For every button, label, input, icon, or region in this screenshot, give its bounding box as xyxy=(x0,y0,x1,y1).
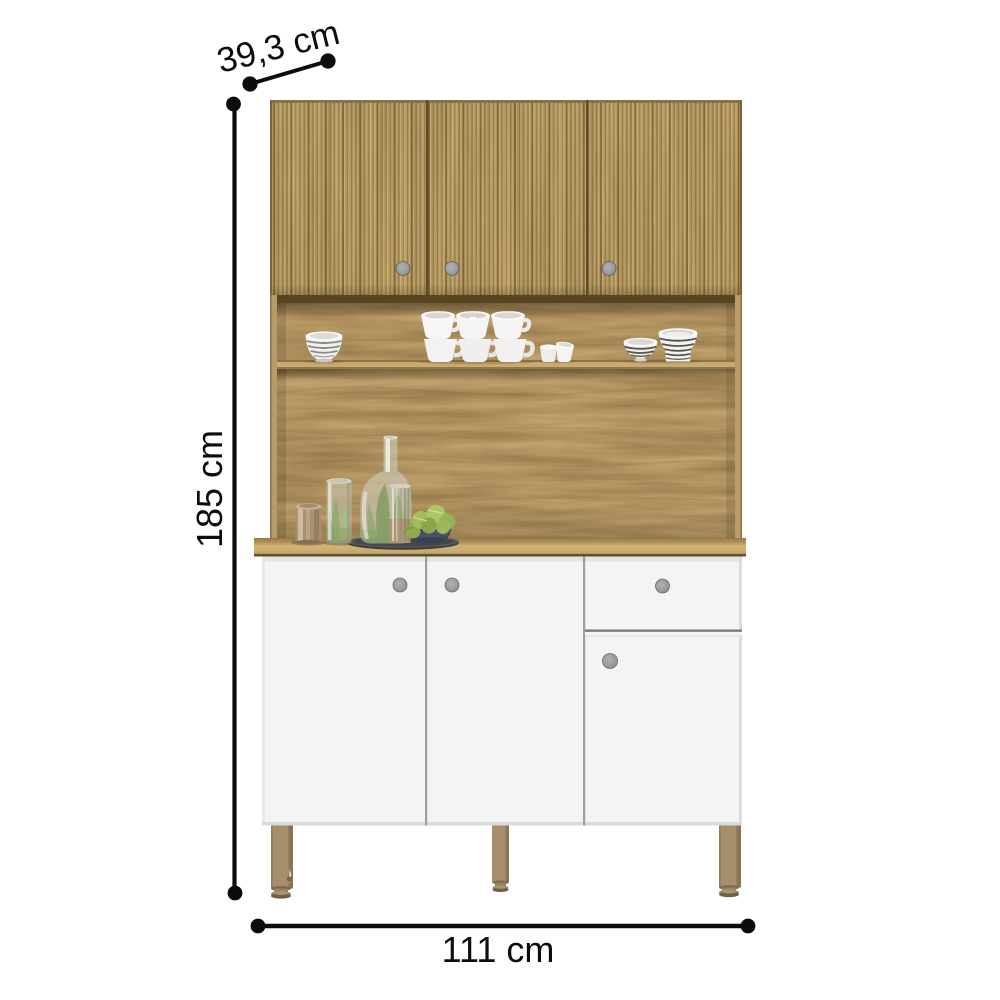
svg-text:111 cm: 111 cm xyxy=(442,929,555,970)
svg-text:185 cm: 185 cm xyxy=(189,430,230,548)
